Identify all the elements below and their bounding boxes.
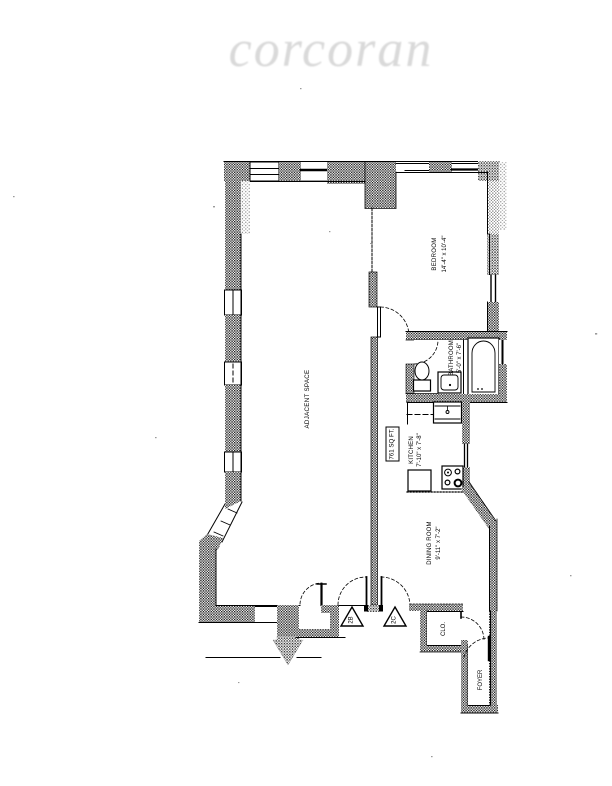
svg-text:corcoran: corcoran (229, 21, 434, 78)
svg-text:761 SQ FT.: 761 SQ FT. (389, 428, 396, 460)
svg-text:KITCHEN: KITCHEN (409, 436, 415, 464)
svg-text:BATHROOM: BATHROOM (449, 340, 455, 376)
svg-text:DINING ROOM: DINING ROOM (427, 521, 433, 565)
svg-text:CLO.: CLO. (441, 622, 447, 636)
svg-text:5'-0" x 7'-6": 5'-0" x 7'-6" (457, 343, 463, 373)
svg-text:ADJACENT SPACE: ADJACENT SPACE (304, 370, 311, 429)
svg-text:9'-11" x 7'-2": 9'-11" x 7'-2" (436, 526, 442, 559)
svg-text:7'-10" x 7'-8": 7'-10" x 7'-8" (417, 433, 423, 467)
svg-text:14'-4" x 10'-4": 14'-4" x 10'-4" (442, 236, 448, 273)
svg-text:2C: 2C (392, 615, 398, 623)
svg-text:FOYER: FOYER (478, 669, 484, 690)
svg-text:BEDROOM: BEDROOM (432, 237, 438, 270)
svg-text:2B: 2B (349, 616, 355, 623)
